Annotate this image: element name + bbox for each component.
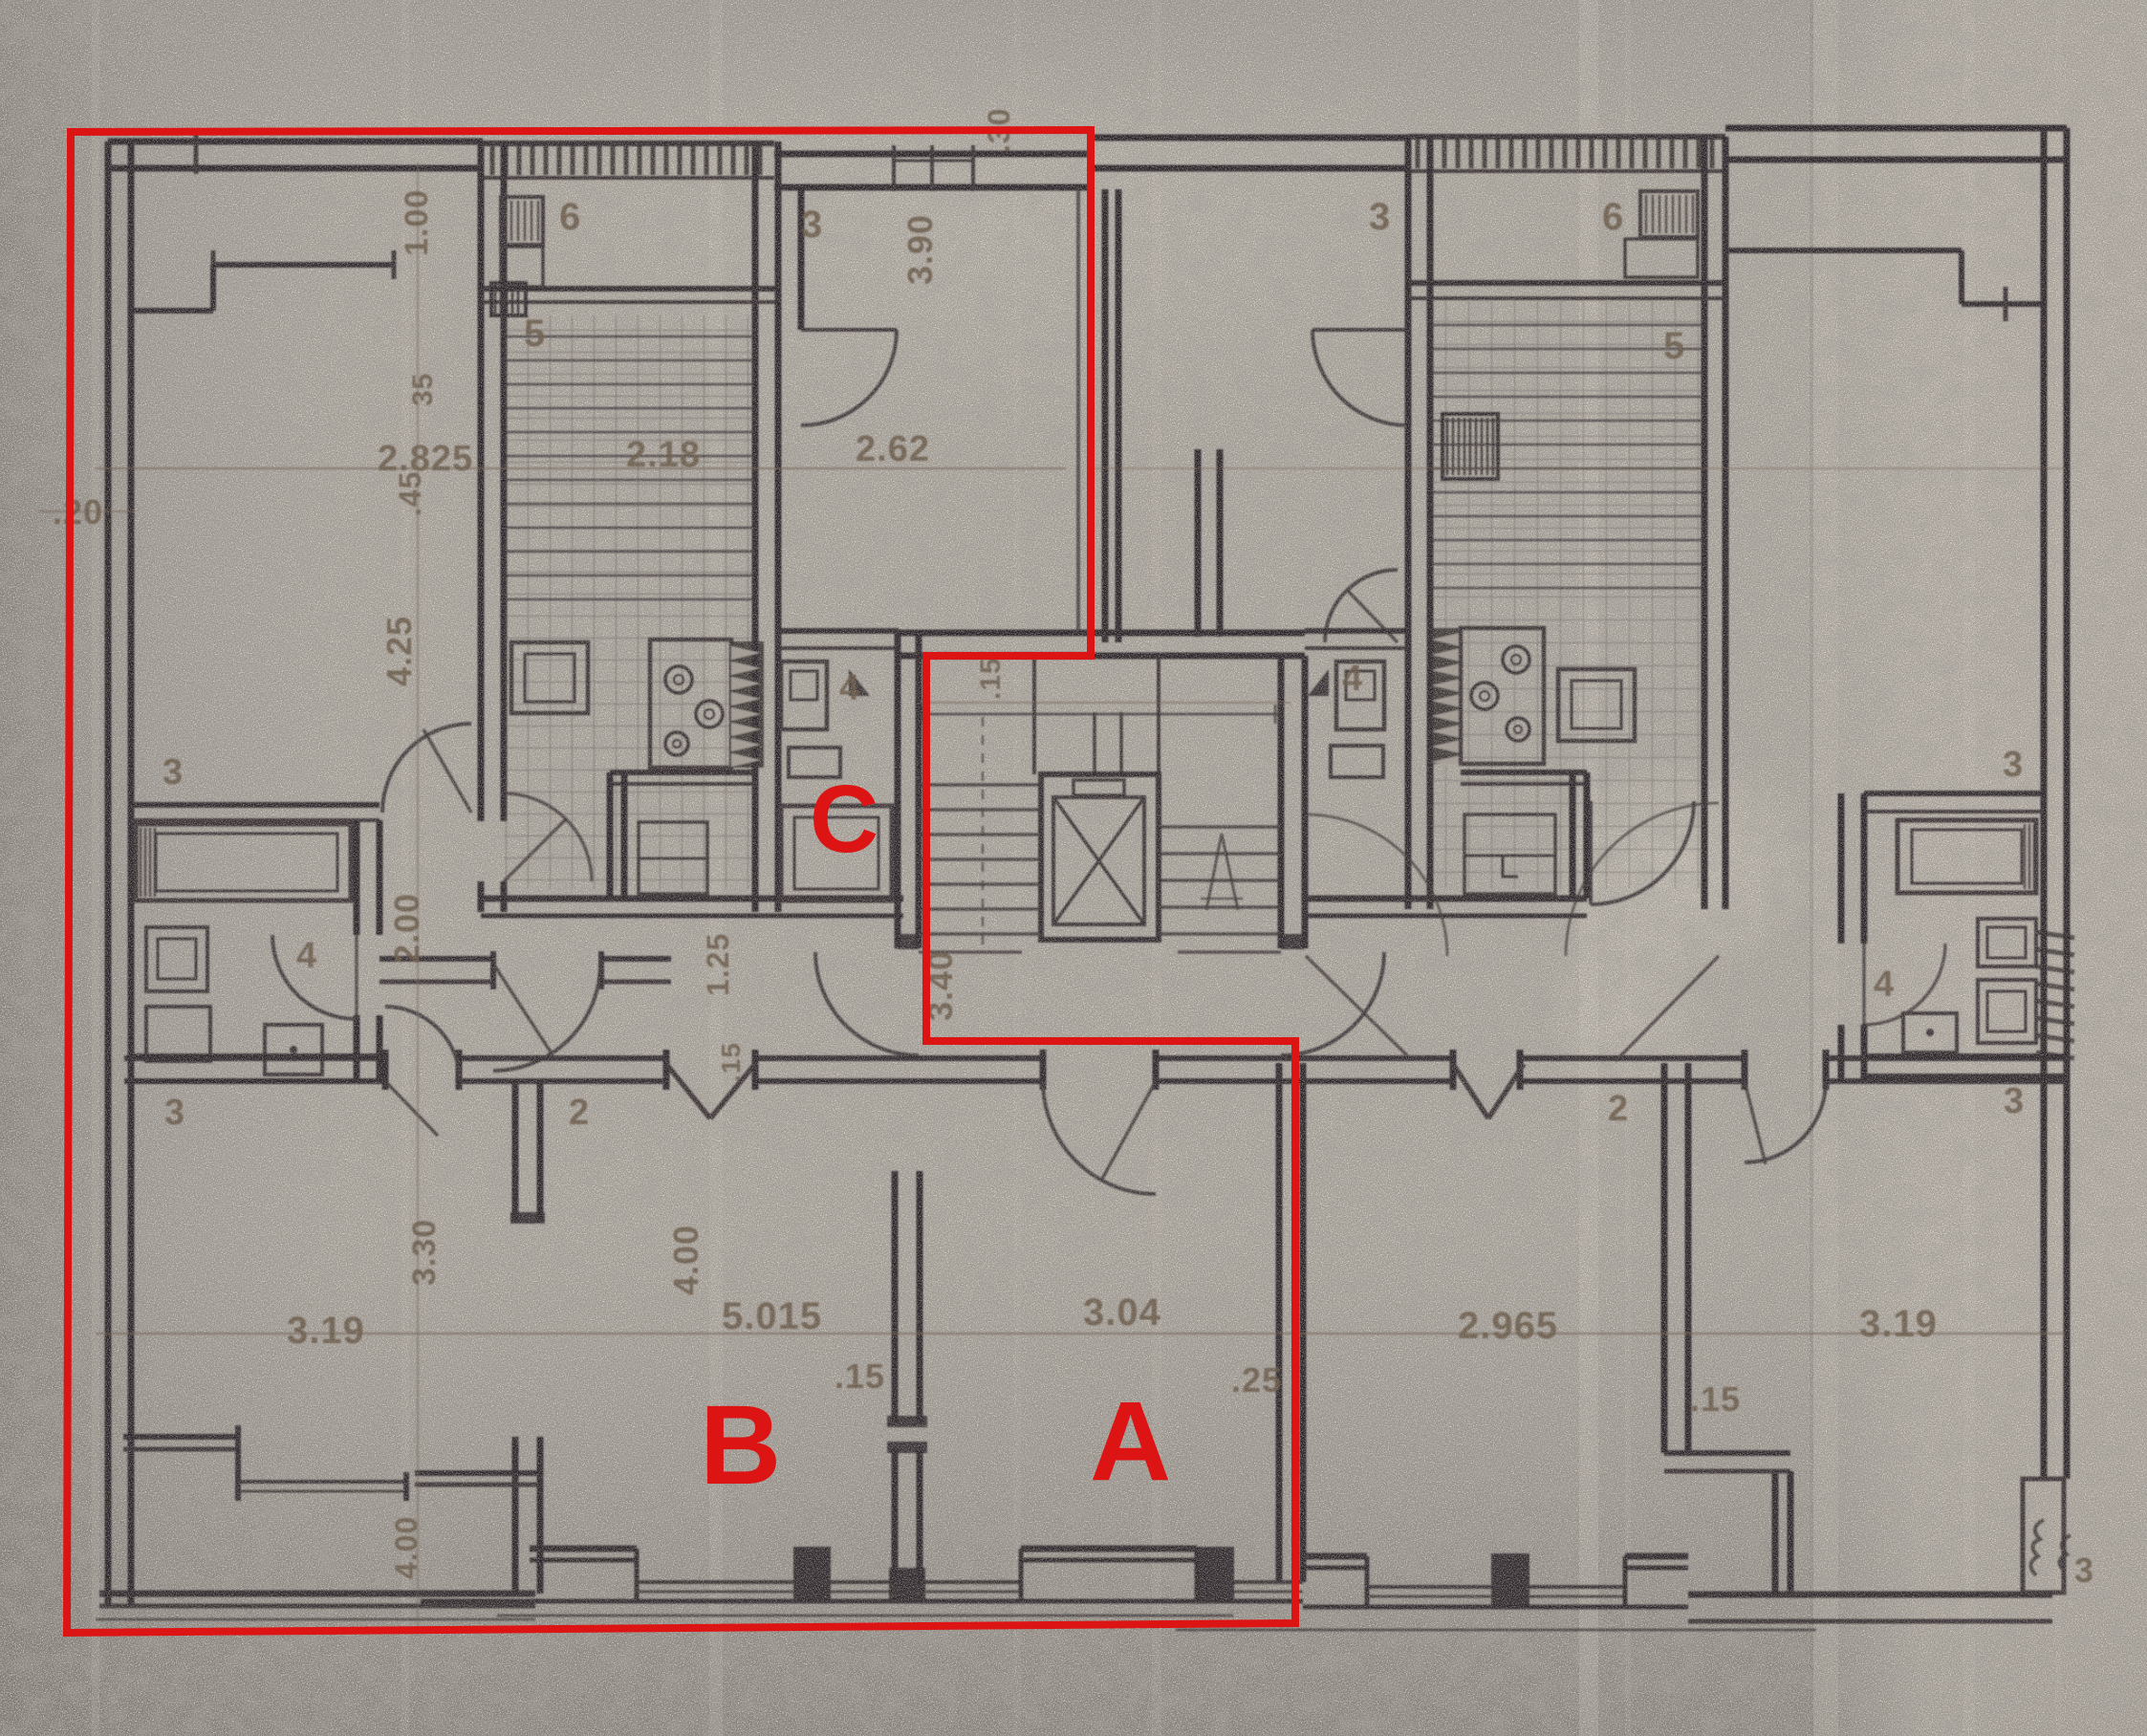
- svg-text:A: A: [1090, 1378, 1172, 1505]
- svg-text:B: B: [700, 1382, 782, 1508]
- svg-text:C: C: [810, 766, 879, 873]
